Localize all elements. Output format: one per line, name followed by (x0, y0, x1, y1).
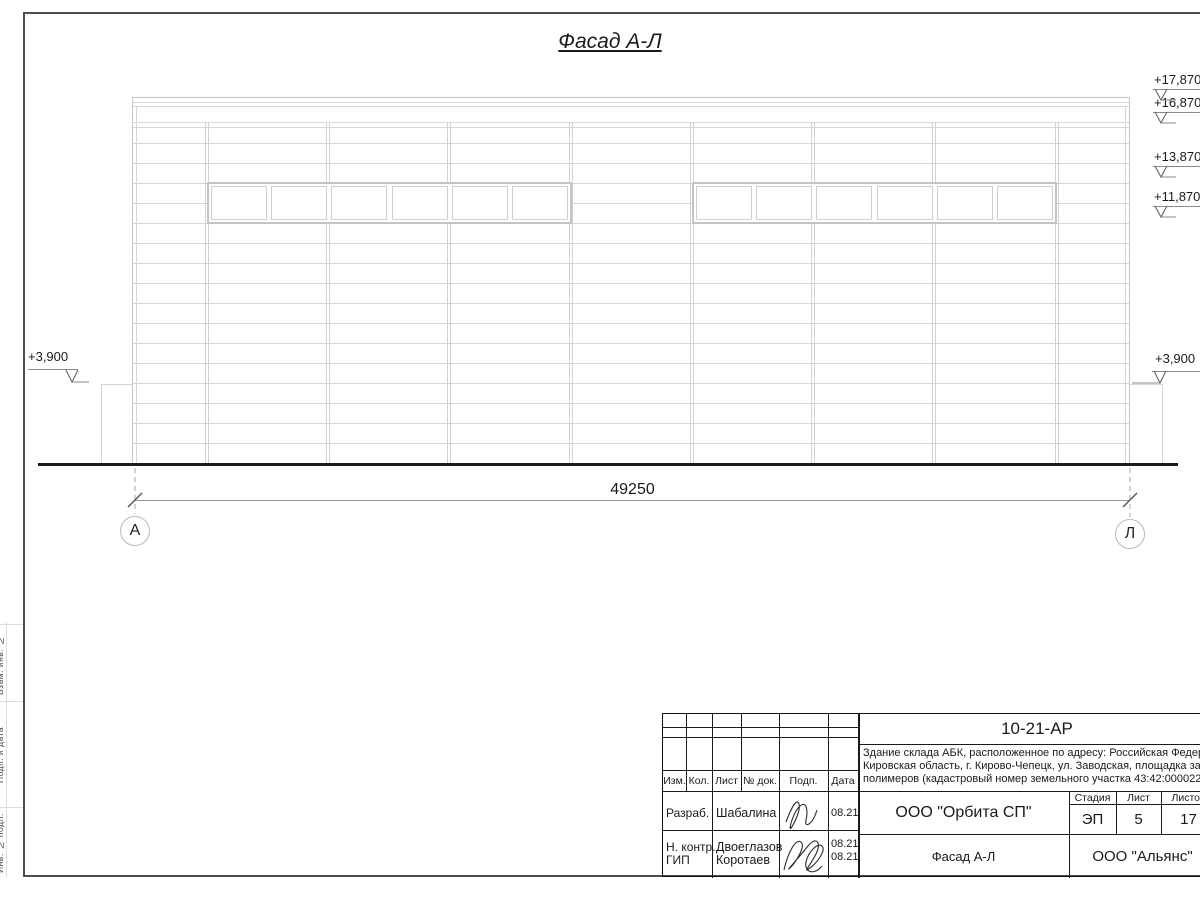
tb-description-line: полимеров (кадастровый номер земельного … (863, 773, 1200, 785)
tb-col-data: Дата (828, 770, 858, 791)
tb-col-list: Лист (712, 770, 741, 791)
elevation-arrow-icon (1155, 206, 1167, 217)
tb-description-line: Кировская область, г. Кирово-Чепецк, ул.… (863, 760, 1200, 772)
elevation-arrow-icon (1155, 166, 1167, 177)
elevation-arrow-icon (1155, 89, 1167, 100)
tb-col-kol: Кол. (686, 770, 712, 791)
tb-sheet-label: Лист (1116, 791, 1161, 804)
tb-sheet-value: 5 (1116, 804, 1161, 834)
tb-col-podp: Подп. (779, 770, 828, 791)
tb-col-izm: Изм. (663, 770, 686, 791)
tb-role-date: 08.21 (831, 851, 859, 863)
tb-sheet-title: Фасад А-Л (858, 834, 1069, 878)
tb-sheets-label: Листов (1161, 791, 1200, 804)
tb-stage-label: Стадия (1069, 791, 1116, 804)
title-block: Изм. Кол. Лист № док. Подп. Дата Разраб.… (662, 713, 1200, 877)
elevation-arrow-icon (1155, 112, 1167, 123)
tb-role-name: Шабалина (716, 806, 776, 820)
tb-role: ГИП (666, 853, 690, 867)
tb-role-name: Коротаев (716, 853, 770, 867)
elevation-arrow-icon (1154, 371, 1166, 383)
tb-stage-value: ЭП (1069, 804, 1116, 834)
drawing-sheet: { "title": "Фасад А-Л", "drawing": { "di… (0, 0, 1200, 900)
tb-role-date: 08.21 (831, 807, 859, 819)
tb-contractor: ООО "Альянс" (1069, 834, 1200, 878)
tb-role-name: Двоеглазов (716, 840, 782, 854)
elevation-arrow-icon (66, 370, 78, 382)
tb-role-date: 08.21 (831, 838, 859, 850)
tb-col-doc: № док. (741, 770, 779, 791)
tb-sheets-value: 17 (1161, 804, 1200, 834)
tb-role: Н. контр. (666, 840, 716, 854)
tb-description-line: Здание склада АБК, расположенное по адре… (863, 747, 1200, 759)
tb-role: Разраб. (666, 806, 709, 820)
tb-doc-code: 10-21-АР (858, 714, 1200, 744)
tb-company: ООО "Орбита СП" (858, 791, 1069, 834)
